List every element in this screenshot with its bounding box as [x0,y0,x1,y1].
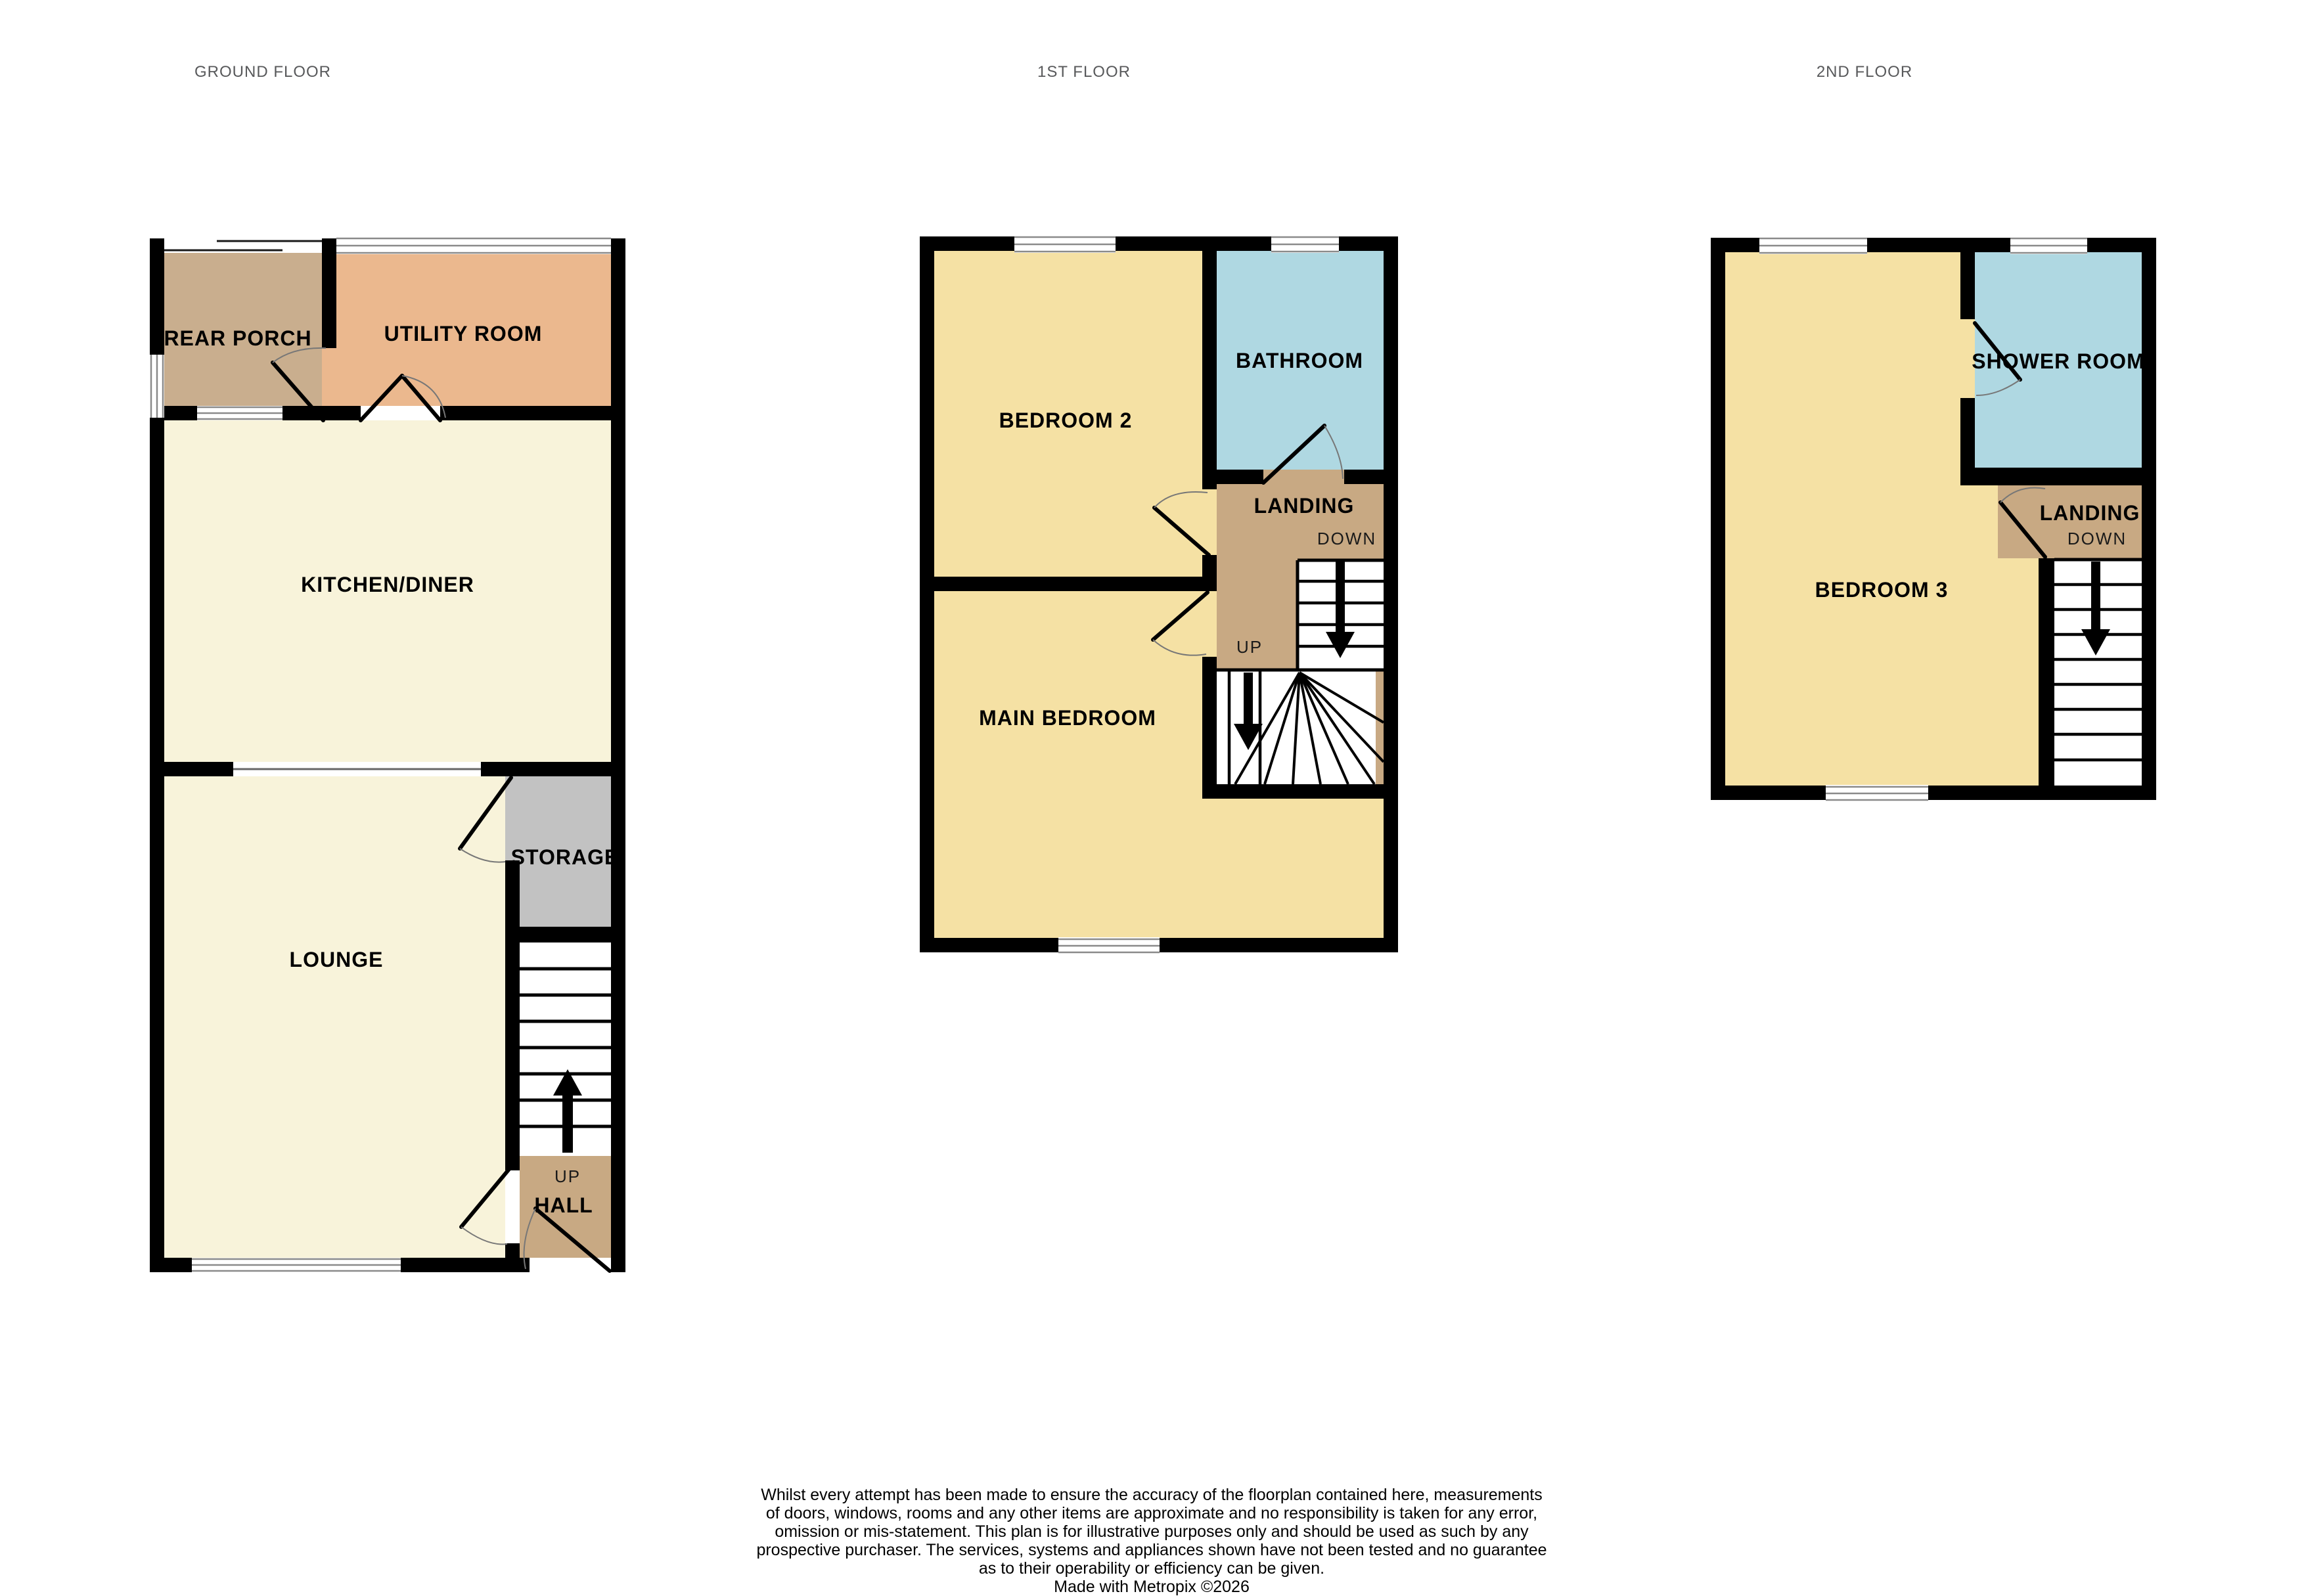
bedroom2-label: BEDROOM 2 [999,409,1133,432]
disclaimer-line: of doors, windows, rooms and any other i… [692,1504,1612,1522]
disclaimer-block: Whilst every attempt has been made to en… [692,1486,1612,1596]
storage-label: STORAGE [511,845,620,869]
disclaimer-line: prospective purchaser. The services, sys… [692,1541,1612,1559]
ground-room-fills [164,253,611,1258]
banister-strip [1376,670,1384,784]
second-floor-title: 2ND FLOOR [1817,63,1912,81]
kitchen-diner-label: KITCHEN/DINER [301,573,474,596]
disclaimer-line: as to their operability or efficiency ca… [692,1559,1612,1578]
bathroom-label: BATHROOM [1236,349,1363,372]
disclaimer-line: Whilst every attempt has been made to en… [692,1486,1612,1504]
second-floor-plan: BEDROOM 3 SHOWER ROOM LANDING DOWN [1702,223,2168,814]
bedroom3-label: BEDROOM 3 [1815,578,1949,602]
lounge-label: LOUNGE [290,948,384,971]
first-landing-label: LANDING [1254,494,1355,518]
first-up-label: UP [1236,637,1263,657]
first-down-label: DOWN [1317,529,1376,548]
main-bedroom-label: MAIN BEDROOM [979,706,1156,730]
disclaimer-line: omission or mis-statement. This plan is … [692,1522,1612,1541]
metropix-credit: Made with Metropix ©2026 [692,1578,1612,1596]
ground-floor-plan: REAR PORCH UTILITY ROOM KITCHEN/DINER LO… [131,223,644,1287]
second-landing-label: LANDING [2040,501,2140,525]
utility-room-label: UTILITY ROOM [384,322,543,345]
second-down-label: DOWN [2067,529,2127,548]
hall-label: HALL [534,1193,593,1217]
rear-porch-label: REAR PORCH [164,326,311,350]
first-floor-plan: BEDROOM 2 BATHROOM LANDING DOWN UP MAIN … [913,223,1412,965]
ground-floor-title: GROUND FLOOR [194,63,331,81]
ground-up-label: UP [554,1166,581,1186]
shower-room-label: SHOWER ROOM [1972,349,2144,373]
first-floor-title: 1ST FLOOR [1037,63,1131,81]
